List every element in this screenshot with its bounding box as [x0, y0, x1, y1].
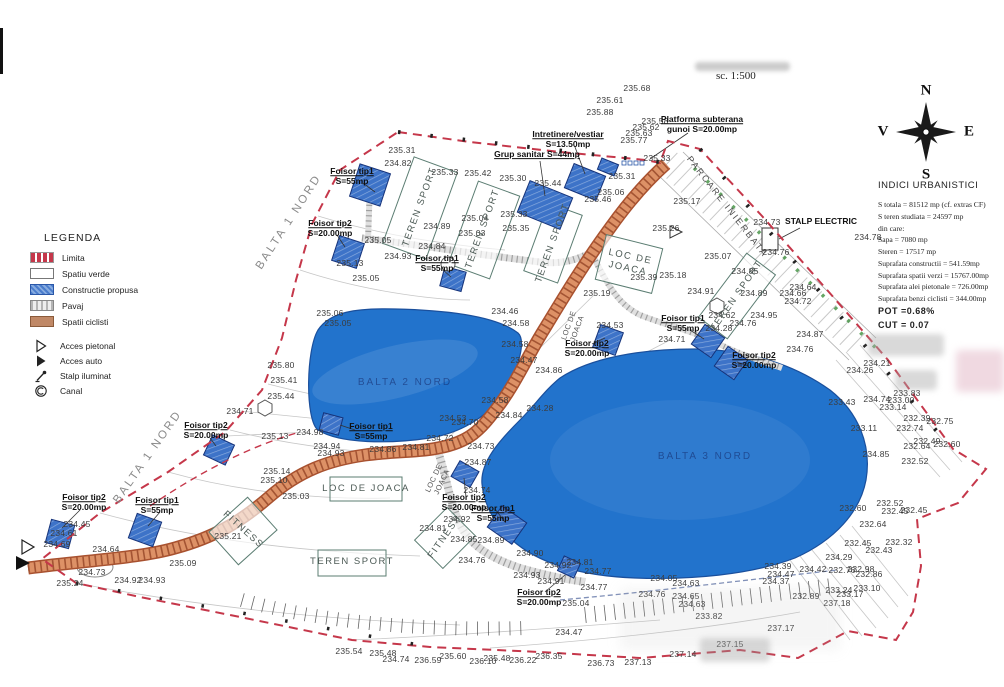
- elevation-label: 235.88: [586, 107, 613, 117]
- compass-west-label: V: [878, 124, 889, 141]
- elevation-label: 234.81: [566, 557, 593, 567]
- stalp-iluminat-icon: [30, 372, 52, 381]
- elevation-label: 235.17: [673, 196, 700, 206]
- elevation-label: 234.87: [796, 329, 823, 339]
- elevation-label: 232.43: [865, 545, 892, 555]
- feature-label: Foisor tip2S=20.00mp: [732, 351, 777, 371]
- area-label: TEREN SPORT: [463, 188, 503, 271]
- feature-label: Foisor tip1S=55mp: [471, 504, 514, 524]
- area-label: BALTA 1 NORD: [110, 408, 185, 507]
- elevation-label: 234.72: [426, 433, 453, 443]
- elevation-label: 232.45: [881, 506, 908, 516]
- elevation-label: 235.39: [630, 272, 657, 282]
- elevation-label: 234.72: [784, 296, 811, 306]
- elevation-label: 234.92: [114, 575, 141, 585]
- elevation-label: 233.83: [893, 388, 920, 398]
- pavaj-swatch: [30, 300, 54, 311]
- area-label: TEREN SPORT: [400, 166, 440, 249]
- legend-item-label: Canal: [60, 386, 82, 396]
- elevation-label: 235.10: [260, 475, 287, 485]
- elevation-label: 234.66: [779, 288, 806, 298]
- feature-label: Foisor tip2S=20.00mp: [184, 421, 229, 441]
- spatii-ciclisti-swatch: [30, 316, 54, 327]
- elevation-label: 234.71: [658, 334, 685, 344]
- elevation-label: 233.82: [695, 611, 722, 621]
- elevation-label: 235.68: [623, 83, 650, 93]
- acces-pietonal-icon: [30, 342, 52, 351]
- elevation-label: 235.48: [369, 648, 396, 658]
- elevation-label: 234.63: [678, 599, 705, 609]
- indici-line: Suprafata constructii = 541.59mp: [878, 258, 1004, 270]
- elevation-label: 235.21: [214, 531, 241, 541]
- area-label: FITNESS: [220, 509, 266, 552]
- elevation-label: 234.74: [463, 485, 490, 495]
- elevation-label: 235.13: [336, 258, 363, 268]
- elevation-label: 234.74: [863, 394, 890, 404]
- elevation-label: 232.86: [855, 569, 882, 579]
- elevation-label: 234.91: [687, 286, 714, 296]
- elevation-label: 232.39: [903, 413, 930, 423]
- elevation-label: 234.89: [477, 535, 504, 545]
- legend-item-label: Pavaj: [62, 301, 83, 311]
- legend-title: LEGENDA: [44, 232, 160, 244]
- elevation-label: 234.69: [43, 539, 70, 549]
- elevation-label: 237.15: [716, 639, 743, 649]
- elevation-label: 234.94: [313, 441, 340, 451]
- area-label: BALTA 1 NORD: [253, 172, 325, 273]
- elevation-label: 234.76: [762, 247, 789, 257]
- elevation-label: 234.84: [495, 410, 522, 420]
- elevation-label: 234.26: [846, 365, 873, 375]
- legend-item-label: Stalp iluminat: [60, 371, 111, 381]
- elevation-label: 232.74: [896, 423, 923, 433]
- elevation-label: 234.53: [596, 320, 623, 330]
- elevation-label: 235.05: [324, 318, 351, 328]
- elevation-label: 236.10: [469, 656, 496, 666]
- elevation-label: 232.64: [903, 441, 930, 451]
- elevation-label: 233.14: [879, 402, 906, 412]
- area-label: LOC DE JOACA: [423, 462, 453, 497]
- indici-line: CUT = 0.07: [878, 319, 1004, 333]
- legend-item-label: Limita: [62, 253, 85, 263]
- elevation-label: 235.62: [632, 122, 659, 132]
- legend-item-label: Constructie propusa: [62, 285, 138, 295]
- elevation-label: 232.45: [844, 538, 871, 548]
- legend-panel: LEGENDA LimitaSpatiu verdeConstructie pr…: [30, 232, 160, 401]
- area-label: TEREN SPORT: [310, 556, 394, 568]
- elevation-label: 235.63: [625, 128, 652, 138]
- elevation-label: 233.10: [853, 583, 880, 593]
- elevation-label: 234.58: [481, 395, 508, 405]
- elevation-label: 235.58: [641, 116, 668, 126]
- elevation-label: 234.53: [439, 413, 466, 423]
- feature-label: Foisor tip1S=55mp: [661, 314, 704, 334]
- legend-item: Acces auto: [30, 356, 160, 366]
- elevation-label: 234.85: [731, 266, 758, 276]
- legend-item: Canal: [30, 386, 160, 396]
- elevation-label: 234.89: [740, 288, 767, 298]
- feature-label: STALP ELECTRIC: [785, 217, 857, 227]
- elevation-label: 234.85: [450, 534, 477, 544]
- compass-south-label: S: [922, 167, 930, 184]
- feature-label: Foisor tip2S=20.00mp: [565, 339, 610, 359]
- elevation-label: 235.09: [169, 558, 196, 568]
- elevation-label: 232.60: [839, 503, 866, 513]
- feature-label: Grup sanitar S=44mp: [494, 150, 580, 160]
- spatiu-verde-swatch: [30, 268, 54, 279]
- elevation-label: 234.92: [544, 560, 571, 570]
- indici-line: Steren = 17517 mp: [878, 246, 1004, 258]
- elevation-label: 234.29: [825, 552, 852, 562]
- elevation-label: 232.32: [885, 537, 912, 547]
- elevation-label: 237.13: [624, 657, 651, 667]
- elevation-label: 234.05: [650, 573, 677, 583]
- legend-item: Constructie propusa: [30, 284, 160, 295]
- elevation-label: 235.33: [431, 167, 458, 177]
- elevation-label: 234.92: [443, 514, 470, 524]
- elevation-label: 232.98: [847, 564, 874, 574]
- elevation-label: 235.61: [596, 95, 623, 105]
- acces-auto-icon: [30, 357, 52, 366]
- elevation-label: 234.76: [638, 589, 665, 599]
- elevation-label: 234.39: [764, 561, 791, 571]
- indici-line: S totala = 81512 mp (cf. extras CF): [878, 199, 1004, 211]
- elevation-label: 234.46: [491, 306, 518, 316]
- elevation-label: 235.13: [261, 431, 288, 441]
- compass-rose: N S E V: [876, 82, 976, 182]
- elevation-label: 234.47: [555, 627, 582, 637]
- elevation-label: 235.03: [282, 491, 309, 501]
- elevation-label: 232.52: [876, 498, 903, 508]
- elevation-label: 235.18: [659, 270, 686, 280]
- elevation-label: 232.75: [926, 416, 953, 426]
- elevation-label: 232.89: [792, 591, 819, 601]
- elevation-label: 234.28: [526, 403, 553, 413]
- elevation-label: 232.45: [900, 505, 927, 515]
- legend-item: Pavaj: [30, 300, 160, 311]
- feature-label: Intretinere/vestiarS=13.50mp: [532, 130, 603, 150]
- feature-label: Foisor tip1S=55mp: [415, 254, 458, 274]
- elevation-label: 234.47: [510, 355, 537, 365]
- legend-item-label: Acces pietonal: [60, 341, 115, 351]
- elevation-label: 234.81: [402, 442, 429, 452]
- elevation-label: 235.06: [597, 187, 624, 197]
- elevation-label: 235.46: [584, 194, 611, 204]
- elevation-label: 234.37: [762, 576, 789, 586]
- elevation-label: 237.14: [669, 649, 696, 659]
- area-label: PARCARE INIERBATA: [684, 154, 770, 260]
- elevation-label: 234.42: [799, 564, 826, 574]
- elevation-label: 235.33: [643, 153, 670, 163]
- elevation-label: 234.93: [384, 251, 411, 261]
- elevation-label: 235.80: [267, 360, 294, 370]
- elevation-label: 234.73: [753, 217, 780, 227]
- elevation-label: 234.21: [863, 358, 890, 368]
- elevation-label: 237.18: [823, 598, 850, 608]
- elevation-label: 235.31: [388, 145, 415, 155]
- feature-label: Platforma subteranagunoi S=20.00mp: [661, 115, 743, 135]
- indici-line: POT =0.68%: [878, 305, 1004, 319]
- elevation-label: 234.45: [63, 519, 90, 529]
- elevation-label: 234.86: [369, 444, 396, 454]
- water-body-label: BALTA 2 NORD: [358, 377, 452, 390]
- indici-line: Suprafata alei pietonale = 726.00mp: [878, 281, 1004, 293]
- legend-item: Spatiu verde: [30, 268, 160, 279]
- elevation-label: 234.98: [296, 427, 323, 437]
- legend-item-label: Spatiu verde: [62, 269, 110, 279]
- legend-item-label: Acces auto: [60, 356, 102, 366]
- area-label: FITNESS: [426, 513, 465, 561]
- elevation-label: 235.44: [534, 178, 561, 188]
- legend-item: Stalp iluminat: [30, 371, 160, 381]
- elevation-label: 234.76: [729, 318, 756, 328]
- elevation-label: 235.60: [439, 651, 466, 661]
- elevation-label: 234.82: [384, 158, 411, 168]
- feature-label: Foisor tip1S=55mp: [330, 167, 373, 187]
- elevation-label: 232.60: [933, 439, 960, 449]
- elevation-label: 235.14: [263, 466, 290, 476]
- elevation-label: 235.30: [499, 173, 526, 183]
- limita-swatch: [30, 252, 54, 263]
- indici-line: Sapa = 7080 mp: [878, 234, 1004, 246]
- legend-item: Spatii ciclisti: [30, 316, 160, 327]
- elevation-label: 234.64: [789, 282, 816, 292]
- elevation-label: 233.43: [828, 397, 855, 407]
- elevation-label: 232.52: [901, 456, 928, 466]
- elevation-label: 234.76: [786, 344, 813, 354]
- elevation-label: 234.65: [672, 591, 699, 601]
- elevation-label: 232.76: [828, 565, 855, 575]
- elevation-label: 234.28: [705, 323, 732, 333]
- indici-line: Suprafata spatii verzi = 15767.00mp: [878, 270, 1004, 282]
- elevation-label: 235.48: [483, 653, 510, 663]
- feature-label: Foisor tip2S=20.00mp: [62, 493, 107, 513]
- elevation-label: 236.35: [535, 651, 562, 661]
- elevation-label: 235.04: [562, 598, 589, 608]
- elevation-label: 234.76: [458, 555, 485, 565]
- elevation-label: 234.95: [750, 310, 777, 320]
- constructie-propusa-swatch: [30, 284, 54, 295]
- elevation-label: 235.26: [652, 223, 679, 233]
- elevation-label: 234.47: [767, 569, 794, 579]
- elevation-label: 237.17: [767, 623, 794, 633]
- elevation-label: 235.54: [335, 646, 362, 656]
- elevation-label: 234.70: [451, 417, 478, 427]
- elevation-label: 234.63: [672, 578, 699, 588]
- water-body-label: BALTA 3 NORD: [658, 451, 752, 464]
- elevation-label: 234.77: [584, 566, 611, 576]
- elevation-label: 235.06: [316, 308, 343, 318]
- elevation-label: 235.04: [461, 213, 488, 223]
- legend-item: Limita: [30, 252, 160, 263]
- elevation-label: 234.77: [580, 582, 607, 592]
- elevation-label: 235.07: [704, 251, 731, 261]
- elevation-label: 233.17: [836, 589, 863, 599]
- feature-label: Foisor tip1S=55mp: [135, 496, 178, 516]
- elevation-label: 235.05: [352, 273, 379, 283]
- legend-item-label: Spatii ciclisti: [62, 317, 108, 327]
- feature-label: Foisor tip2S=20.00mp: [442, 493, 487, 513]
- elevation-label: 234.93: [138, 575, 165, 585]
- area-label: LOC DE JOACA: [322, 483, 410, 495]
- legend-item: Acces pietonal: [30, 341, 160, 351]
- elevation-label: 234.91: [537, 576, 564, 586]
- area-label: TEREN SPORT: [708, 258, 766, 334]
- compass-north-label: N: [921, 83, 932, 100]
- elevation-label: 234.84: [418, 241, 445, 251]
- elevation-label: 234.93: [317, 448, 344, 458]
- elevation-label: 235.19: [583, 288, 610, 298]
- elevation-label: 235.77: [620, 135, 647, 145]
- elevation-label: 235.05: [364, 235, 391, 245]
- elevation-label: 234.62: [708, 310, 735, 320]
- elevation-label: 234.58: [501, 339, 528, 349]
- indici-lines: S totala = 81512 mp (cf. extras CF)S ter…: [878, 199, 1004, 333]
- elevation-label: 236.59: [414, 655, 441, 665]
- indici-line: din care:: [878, 223, 1004, 235]
- elevation-label: 234.73: [78, 567, 105, 577]
- elevation-label: 235.44: [267, 391, 294, 401]
- elevation-label: 234.93: [513, 570, 540, 580]
- elevation-label: 234.85: [862, 449, 889, 459]
- urbanistic-indices-panel: INDICI URBANISTICI S totala = 81512 mp (…: [878, 180, 1004, 333]
- elevation-label: 235.42: [464, 168, 491, 178]
- indici-line: Suprafata benzi ciclisti = 344.00mp: [878, 293, 1004, 305]
- compass-east-label: E: [964, 124, 974, 141]
- elevation-label: 236.22: [509, 655, 536, 665]
- elevation-label: 235.31: [608, 171, 635, 181]
- elevation-label: 235.03: [458, 228, 485, 238]
- elevation-label: 234.86: [535, 365, 562, 375]
- elevation-label: 233.24: [825, 585, 852, 595]
- elevation-label: 235.41: [270, 375, 297, 385]
- elevation-label: 234.74: [382, 654, 409, 664]
- elevation-label: 232.49: [913, 436, 940, 446]
- elevation-label: 235.33: [500, 209, 527, 219]
- area-label: LOC DE JOACA: [605, 247, 653, 279]
- area-label: TEREN SPORT: [533, 202, 573, 285]
- legend-items: LimitaSpatiu verdeConstructie propusaPav…: [30, 252, 160, 396]
- feature-label: Foisor tip1S=55mp: [349, 422, 392, 442]
- feature-label: Foisor tip2S=20.00mp: [308, 219, 353, 239]
- indici-line: S teren studiata = 24597 mp: [878, 211, 1004, 223]
- elevation-label: 235.24: [56, 578, 83, 588]
- elevation-label: 234.61: [50, 528, 77, 538]
- elevation-label: 234.73: [467, 441, 494, 451]
- elevation-label: 233.00: [887, 395, 914, 405]
- scale-label: sc. 1:500: [716, 70, 756, 82]
- canal-icon: [30, 387, 52, 396]
- elevation-label: 234.58: [502, 318, 529, 328]
- elevation-label: 234.89: [423, 221, 450, 231]
- elevation-label: 232.64: [859, 519, 886, 529]
- site-plan-page: 235.68235.61235.88235.58235.62235.63235.…: [0, 0, 1004, 687]
- area-label: LOC DE JOACA: [559, 310, 587, 345]
- elevation-label: 234.64: [92, 544, 119, 554]
- feature-label: Foisor tip2S=20.00mp: [517, 588, 562, 608]
- elevation-label: 234.87: [464, 457, 491, 467]
- elevation-label: 236.73: [587, 658, 614, 668]
- elevation-label: 234.81: [419, 523, 446, 533]
- elevation-label: 235.35: [502, 223, 529, 233]
- elevation-label: 233.11: [851, 423, 878, 433]
- elevation-label: 234.71: [226, 406, 253, 416]
- elevation-label: 234.90: [516, 548, 543, 558]
